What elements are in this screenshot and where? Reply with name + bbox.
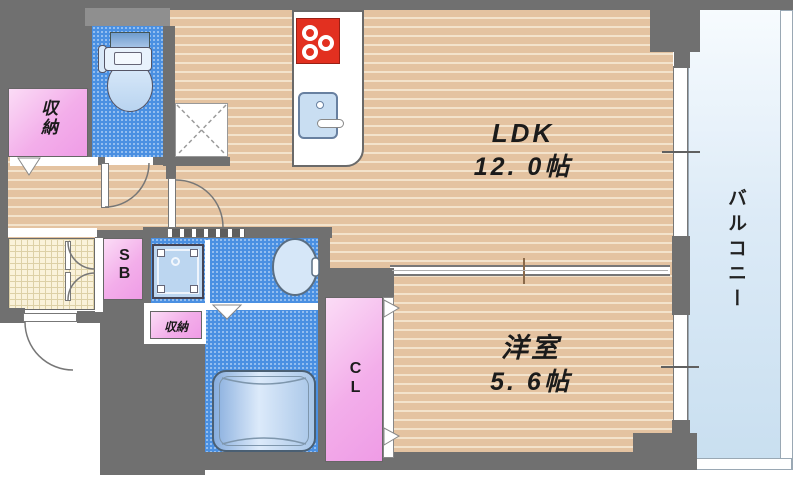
wall-right-stem bbox=[674, 52, 690, 68]
washer-corner bbox=[190, 285, 198, 293]
toilet-lid-detail bbox=[114, 52, 142, 65]
floor-plan: 収納 SB 収納 CL bbox=[0, 0, 800, 477]
hall-storage: 収納 bbox=[150, 311, 202, 339]
ldk-door-leaf bbox=[168, 178, 176, 228]
ldk-area: 12. 0帖 bbox=[413, 151, 633, 185]
balcony-railing-bottom bbox=[688, 458, 792, 470]
wall-washroom-left bbox=[143, 238, 151, 313]
refrigerator-space bbox=[175, 103, 228, 157]
sliding-partition bbox=[390, 265, 670, 276]
burner-icon bbox=[318, 35, 334, 51]
kitchen-sink-icon bbox=[298, 92, 338, 139]
entrance-storage: 収納 bbox=[8, 88, 88, 157]
western-room-area: 5. 6帖 bbox=[421, 366, 641, 400]
shoebox-door-leaf bbox=[65, 241, 71, 270]
wall-left bbox=[0, 85, 8, 323]
western-room-label: 洋室 5. 6帖 bbox=[421, 330, 641, 400]
washer-corner bbox=[190, 249, 198, 257]
wall-right-middle bbox=[672, 236, 690, 315]
wall-hall-doorpost bbox=[166, 165, 176, 179]
closet-label: CL bbox=[346, 360, 364, 398]
balcony-label: バルコニー bbox=[722, 188, 749, 378]
bathtub-inner bbox=[219, 376, 309, 446]
toilet-door-opening bbox=[105, 157, 153, 165]
washer-corner bbox=[157, 249, 165, 257]
balcony-railing-right bbox=[780, 10, 793, 470]
wall-top-left-block bbox=[0, 0, 95, 92]
pillar-top-right bbox=[650, 3, 700, 52]
pillar-bottom-right bbox=[633, 433, 697, 470]
wall-toilet-top bbox=[85, 8, 170, 26]
western-room-window bbox=[673, 313, 688, 424]
wall-entrance-left bbox=[0, 308, 25, 323]
faucet-icon bbox=[317, 119, 344, 128]
wall-above-closet bbox=[318, 268, 394, 297]
storage-opening bbox=[10, 157, 98, 166]
shoe-box-label: SB bbox=[115, 247, 133, 283]
wall-below-shoebox bbox=[103, 300, 143, 313]
closet-folding-door bbox=[383, 297, 394, 458]
entrance-step bbox=[8, 228, 97, 237]
western-room-name: 洋室 bbox=[421, 330, 641, 366]
wall-right-lower bbox=[672, 420, 690, 437]
wall-bottom bbox=[205, 452, 697, 470]
burner-icon bbox=[302, 44, 318, 60]
shoebox-door-strip bbox=[95, 238, 103, 312]
wall-toilet-right bbox=[163, 26, 175, 165]
entrance-tile-floor bbox=[8, 238, 95, 310]
washer-dial-icon bbox=[171, 257, 180, 266]
shoe-box: SB bbox=[103, 238, 143, 300]
closet: CL bbox=[325, 297, 383, 462]
ldk-label: LDK 12. 0帖 bbox=[413, 116, 633, 185]
entrance-door-arc bbox=[25, 322, 73, 370]
sink-drain-icon bbox=[316, 101, 324, 109]
laundry-divider bbox=[205, 240, 210, 303]
toilet-door-leaf bbox=[101, 163, 109, 208]
shoebox-door-leaf bbox=[65, 272, 71, 301]
entrance-storage-label: 収納 bbox=[35, 99, 60, 137]
washroom-sliding-door bbox=[168, 229, 245, 237]
burner-icon bbox=[302, 25, 318, 41]
ldk-name: LDK bbox=[413, 116, 633, 151]
ldk-window bbox=[673, 66, 688, 238]
washer-corner bbox=[157, 285, 165, 293]
wall-above-shoebox bbox=[95, 230, 143, 238]
entrance-door-leaf bbox=[23, 313, 77, 322]
hall-storage-label: 収納 bbox=[151, 318, 201, 335]
